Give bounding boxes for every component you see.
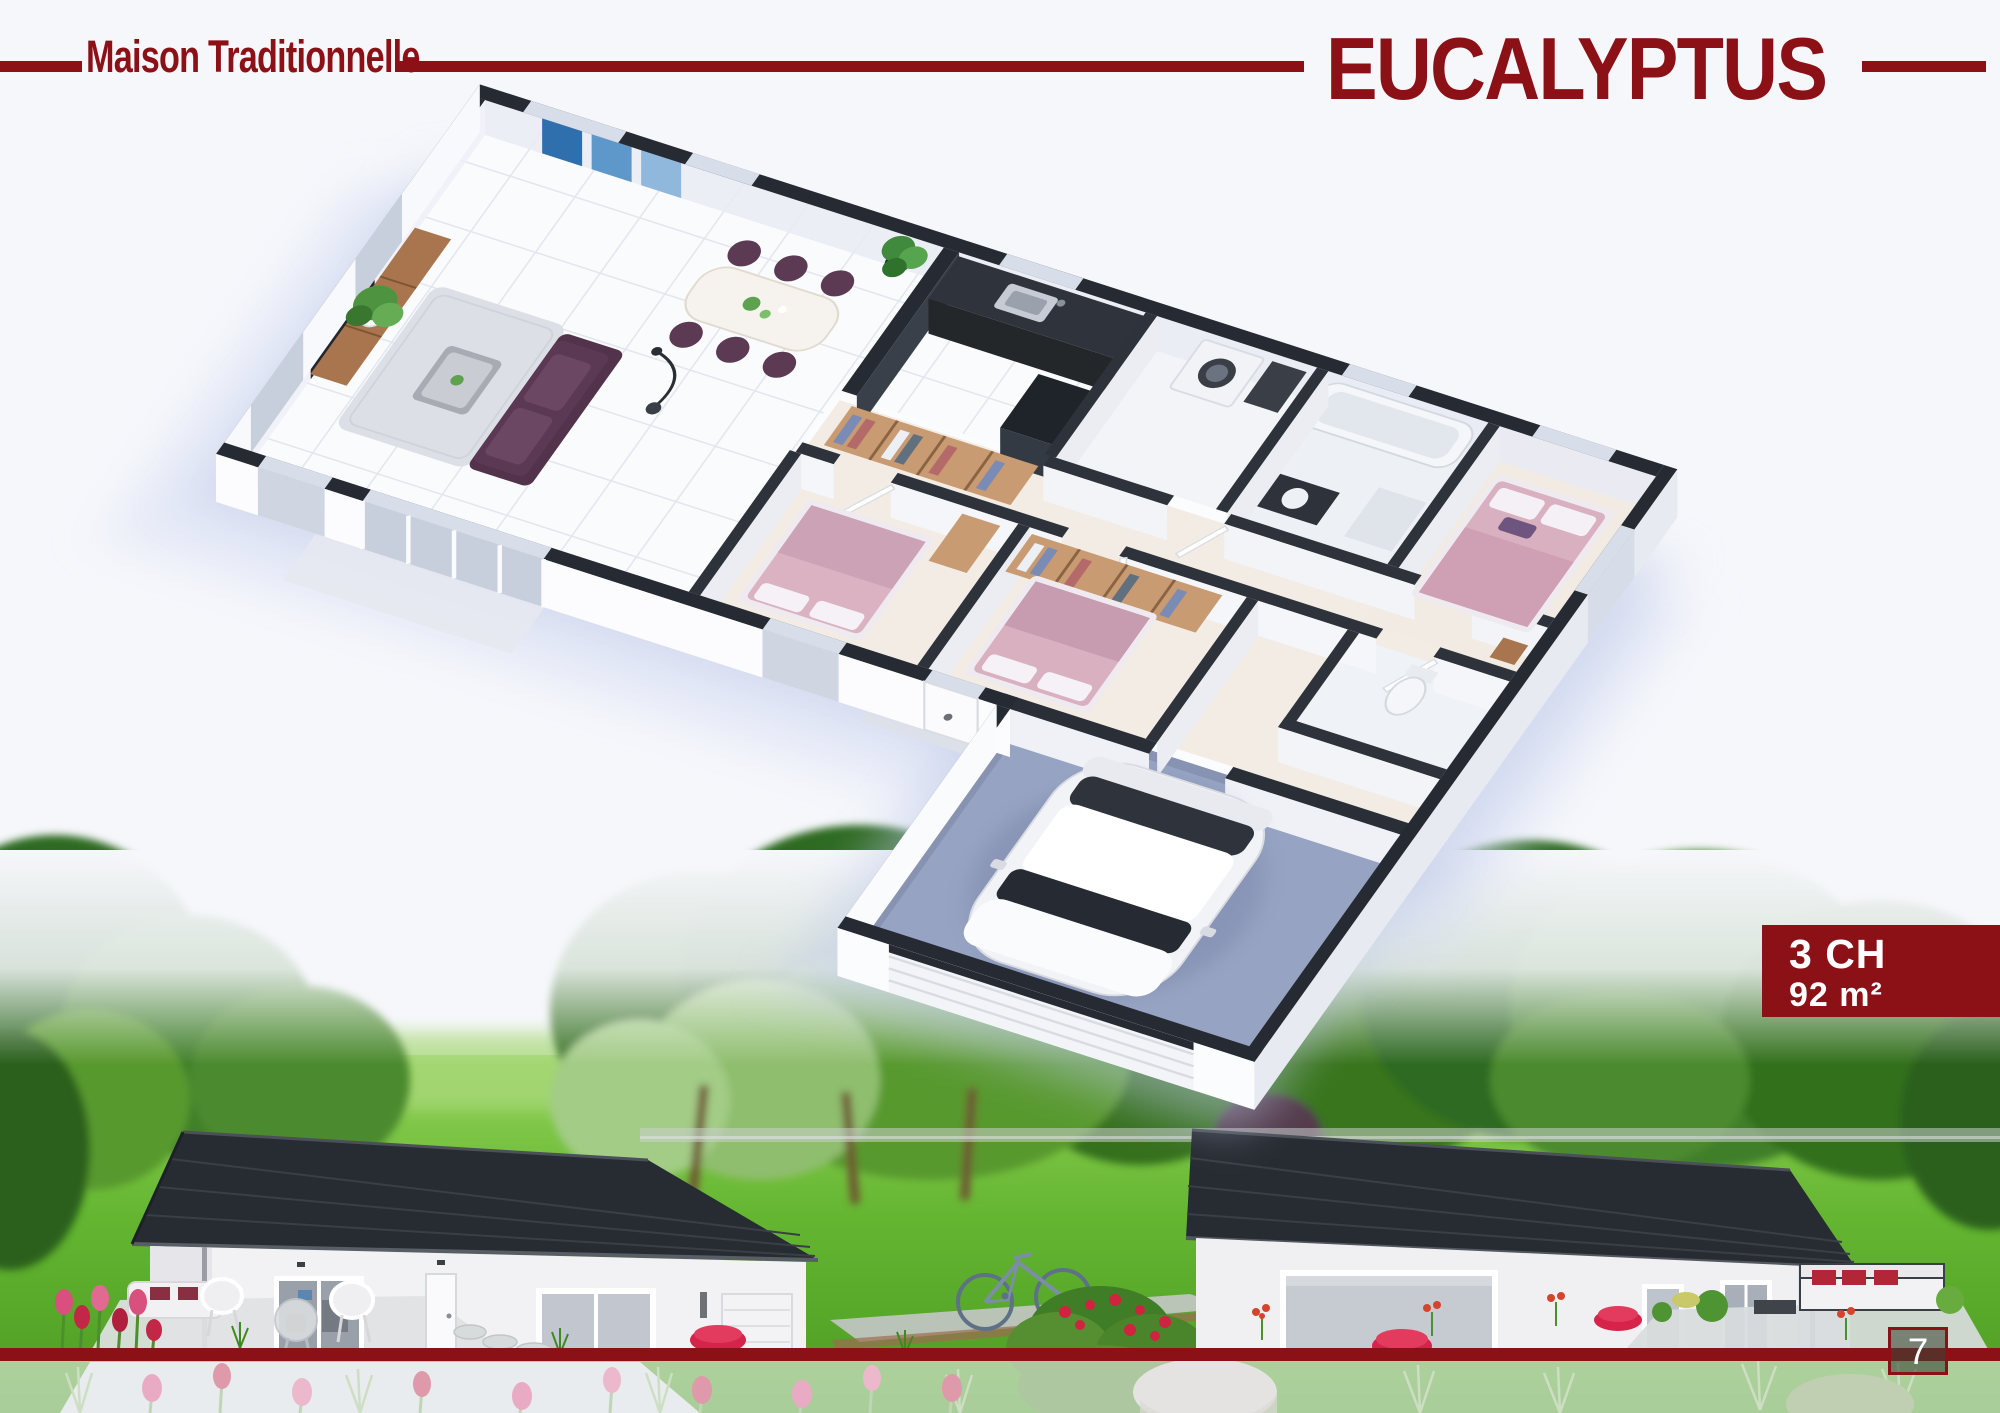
model-title: EUCALYPTUS: [1326, 18, 1826, 120]
red-pouf: [1594, 1309, 1642, 1331]
right-house-glass-door: [1720, 1280, 1772, 1356]
fade-wash: [0, 1361, 2000, 1413]
east-wall: [1213, 465, 1705, 1110]
spec-badge: 3 CH 92 m²: [1762, 925, 2000, 1017]
bedroom1-floor: [1360, 426, 1656, 672]
bedroom-1: [1389, 473, 1623, 665]
bathtub: [1296, 379, 1480, 472]
sofa: [466, 332, 625, 487]
rock: [1133, 1358, 1277, 1413]
floors: [70, 100, 1656, 1058]
interior-walls: [668, 245, 1676, 858]
kitchen-counter: [928, 256, 1145, 358]
bedroom-2: [736, 471, 1000, 656]
wall-art-blue-paintings: [522, 118, 702, 198]
foreground-below-rule: [60, 1358, 1916, 1413]
series-title: Maison Traditionnelle: [86, 31, 420, 83]
car: [915, 742, 1320, 1031]
entry-door: [896, 682, 1005, 747]
right-house-small-window: [1642, 1284, 1684, 1354]
left-house-entry-door: [426, 1274, 456, 1354]
garage-wing: [810, 705, 1442, 1110]
floor-lamp: [614, 346, 697, 416]
bush: [1696, 1290, 1728, 1322]
nightstand: [1490, 638, 1529, 665]
car-windshield: [992, 867, 1195, 956]
outdoor-sofa-set: [1754, 1264, 1944, 1314]
right-house-render: [1186, 1130, 1992, 1360]
kitchen: [821, 247, 1168, 491]
bollard-light: [700, 1292, 707, 1318]
wc: [1377, 664, 1440, 719]
pale-grasses: [66, 1358, 1916, 1413]
bathroom-floor: [1227, 371, 1488, 564]
floorplan-3d-illustration: [0, 0, 2000, 1413]
closet: [929, 514, 1001, 573]
gravel-path: [830, 1294, 1230, 1342]
car-roof: [1017, 801, 1239, 925]
toilet: [1377, 673, 1433, 719]
garage-floor: [869, 709, 1402, 1047]
surface-area: 92 m²: [1789, 977, 2000, 1014]
vanity: [1250, 471, 1340, 525]
downpipe: [202, 1247, 207, 1355]
bathroom: [1239, 379, 1480, 552]
west-wall-inner-face: [217, 100, 505, 482]
kitchen-shelving: [842, 247, 959, 395]
door-leafs: [837, 423, 1477, 700]
porch-slab: [861, 676, 998, 754]
tv-screen: [290, 255, 395, 380]
left-house-render: [55, 1132, 818, 1357]
washing-machine: [1169, 339, 1265, 407]
living-room: [277, 104, 937, 551]
shower: [1344, 487, 1426, 551]
exterior-views-illustration: [0, 0, 2000, 1413]
middle-garden: [232, 1254, 1513, 1413]
north-wall-inner-face: [465, 100, 1677, 511]
right-house-shuttered-window: [1280, 1270, 1498, 1360]
coffee-table: [410, 344, 504, 415]
dining-table: [675, 261, 849, 357]
wire-chairs-and-table: [128, 1279, 373, 1356]
left-house-facade: [150, 1246, 806, 1356]
patio-slab: [283, 499, 570, 654]
tree-line: [0, 825, 2000, 1270]
patio-sliding-door: [335, 501, 572, 607]
right-house-roof: [1186, 1130, 1856, 1268]
bedrooms-count: 3 CH: [1789, 932, 2000, 977]
left-house-garage-door: [722, 1294, 792, 1356]
bedroom-hall-floor: [700, 400, 1548, 823]
bedroom-3: [963, 575, 1160, 715]
laundry-floor: [1056, 316, 1317, 509]
outer-walls-back: [196, 84, 1664, 862]
tulip-bed: [55, 1285, 162, 1356]
potted-plant-ficus: [339, 281, 418, 338]
fridge: [1000, 374, 1092, 445]
left-house-patio-door: [274, 1276, 364, 1354]
road: [640, 1128, 2000, 1142]
wardrobe-row-2: [1005, 534, 1222, 633]
tulip-row-faded: [142, 1363, 962, 1413]
top-fog: [0, 850, 2000, 1065]
header-rule-middle: [396, 61, 1304, 72]
brochure-page: Maison Traditionnelle EUCALYPTUS 3 CH 92…: [0, 0, 2000, 1413]
laundry-room: [1169, 339, 1307, 421]
bed: [1410, 473, 1617, 634]
garage-back-wall: [976, 693, 1442, 873]
tv-console: [310, 228, 451, 386]
plan-shadow: [0, 147, 1714, 1153]
footer-rule: [0, 1348, 2000, 1361]
front-wall: [188, 442, 1046, 757]
rug: [334, 284, 569, 469]
wardrobe-row-1: [824, 406, 1038, 505]
header-rule-left: [0, 61, 82, 72]
bicycle: [958, 1254, 1090, 1329]
car-rear-window: [1065, 773, 1259, 858]
flower-accents: [1252, 1292, 1855, 1340]
potted-plant-tall: [866, 232, 937, 284]
left-house-roof: [132, 1132, 818, 1260]
garage-door: [861, 944, 1221, 1090]
dining-set: [655, 234, 868, 384]
bollard-light: [1240, 1286, 1246, 1310]
car-hood: [955, 894, 1180, 1001]
left-terrace-slab: [88, 1296, 510, 1356]
left-house-window: [536, 1288, 656, 1356]
downpipe: [1810, 1266, 1815, 1356]
page-number: 7: [1888, 1327, 1948, 1375]
header-rule-right: [1862, 61, 1986, 72]
bush: [1936, 1286, 1964, 1314]
kitchen-sink: [993, 283, 1060, 323]
wc-floor: [1296, 638, 1506, 769]
right-house-facade: [1196, 1238, 1850, 1356]
